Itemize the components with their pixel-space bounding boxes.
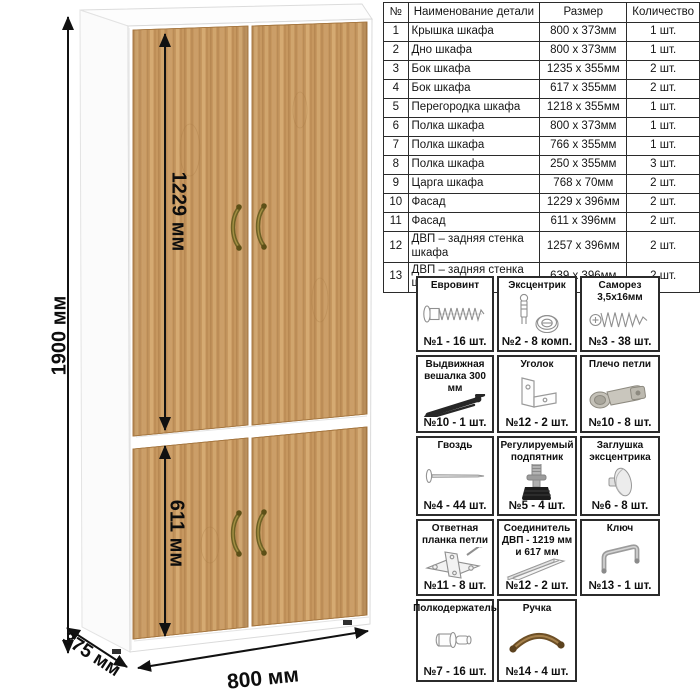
hardware-title: Соединитель ДВП - 1219 мм и 617 мм — [500, 523, 574, 558]
part-row: 2Дно шкафа800 х 373мм1 шт. — [384, 42, 700, 61]
hardware-grid: Евровинт №1 - 16 шт. Эксцентрик №2 - — [416, 276, 660, 682]
hardware-count: №3 - 38 шт. — [589, 336, 652, 348]
part-size: 768 х 70мм — [540, 175, 627, 194]
part-name: Полка шкафа — [408, 137, 540, 156]
part-size: 1229 х 396мм — [540, 194, 627, 213]
part-num: 10 — [384, 194, 409, 213]
hardware-item-veshalka: Выдвижная вешалка 300 мм №10 - 1 шт. — [416, 355, 494, 433]
dimension-label-upper-door: 1229 мм — [167, 166, 190, 258]
hardware-item-polkoderzhatel: Полкодержатель №7 - 16 шт. — [416, 599, 494, 682]
part-qty: 2 шт. — [627, 80, 700, 99]
hardware-title: Гвоздь — [438, 440, 473, 452]
header-name: Наименование детали — [408, 3, 540, 23]
hardware-count: №5 - 4 шт. — [509, 500, 565, 512]
hardware-title: Ручка — [523, 603, 552, 615]
hardware-title: Выдвижная вешалка 300 мм — [419, 359, 491, 394]
part-num: 9 — [384, 175, 409, 194]
hardware-count: №12 - 2 шт. — [506, 417, 569, 429]
cabinet-foot — [112, 649, 121, 654]
part-qty: 2 шт. — [627, 194, 700, 213]
parts-table: № Наименование детали Размер Количество … — [383, 2, 700, 293]
part-size: 800 х 373мм — [540, 118, 627, 137]
part-qty: 1 шт. — [627, 23, 700, 42]
part-qty: 1 шт. — [627, 99, 700, 118]
eccentric-cam-icon — [509, 292, 565, 336]
part-name: Фасад — [408, 194, 540, 213]
hardware-item-ruchka: Ручка №14 - 4 шт. — [497, 599, 577, 682]
hardware-count: №4 - 44 шт. — [424, 500, 487, 512]
part-row: 6Полка шкафа800 х 373мм1 шт. — [384, 118, 700, 137]
hdf-connector-icon — [504, 558, 570, 580]
part-row: 5Перегородка шкафа1218 х 355мм1 шт. — [384, 99, 700, 118]
hardware-count: №2 - 8 комп. — [502, 336, 572, 348]
part-name: Бок шкафа — [408, 61, 540, 80]
assembly-sheet: 1900 мм 1229 мм 611 мм 800 мм 375 мм № Н… — [0, 0, 700, 700]
header-num: № — [384, 3, 409, 23]
part-qty: 1 шт. — [627, 118, 700, 137]
part-row: 11Фасад611 х 396мм2 шт. — [384, 213, 700, 232]
hardware-item-podpyatnik: Регулируемый подпятник №5 - 4 шт. — [497, 436, 577, 516]
hardware-item-gvozd: Гвоздь №4 - 44 шт. — [416, 436, 494, 516]
part-size: 1257 х 396мм — [540, 232, 627, 263]
dimension-label-height: 1900 мм — [49, 288, 72, 384]
part-num: 13 — [384, 262, 409, 293]
part-name: ДВП – задняя стенка шкафа — [408, 232, 540, 263]
part-size: 766 х 355мм — [540, 137, 627, 156]
part-name: Дно шкафа — [408, 42, 540, 61]
hardware-count: №11 - 8 шт. — [424, 580, 486, 592]
hardware-count: №1 - 16 шт. — [424, 336, 487, 348]
part-size: 617 х 355мм — [540, 80, 627, 99]
part-qty: 2 шт. — [627, 61, 700, 80]
hardware-item-samorez: Саморез 3,5х16мм №3 - 38 шт. — [580, 276, 660, 352]
hardware-title: Уголок — [520, 359, 553, 371]
hardware-title: Эксцентрик — [508, 280, 565, 292]
part-num: 4 — [384, 80, 409, 99]
part-name: Полка шкафа — [408, 156, 540, 175]
part-num: 7 — [384, 137, 409, 156]
hardware-title: Плечо петли — [589, 359, 651, 371]
part-name: Крышка шкафа — [408, 23, 540, 42]
part-num: 2 — [384, 42, 409, 61]
part-size: 250 х 355мм — [540, 156, 627, 175]
hardware-title: Саморез 3,5х16мм — [583, 280, 657, 304]
part-name: Фасад — [408, 213, 540, 232]
hardware-title: Ответная планка петли — [419, 523, 491, 547]
part-name: Царга шкафа — [408, 175, 540, 194]
part-size: 800 х 373мм — [540, 42, 627, 61]
euro-screw-icon — [422, 292, 488, 336]
corner-bracket-icon — [512, 371, 562, 417]
cabinet-foot — [343, 620, 352, 625]
part-size: 800 х 373мм — [540, 23, 627, 42]
hardware-item-ekscentrik: Эксцентрик №2 - 8 комп. — [497, 276, 577, 352]
hardware-item-ugolok: Уголок №12 - 2 шт. — [497, 355, 577, 433]
part-row: 3Бок шкафа1235 х 355мм2 шт. — [384, 61, 700, 80]
part-row: 4Бок шкафа617 х 355мм2 шт. — [384, 80, 700, 99]
hardware-item-zaglushka: Заглушка эксцентрика №6 - 8 шт. — [580, 436, 660, 516]
cam-cover-icon — [601, 464, 639, 500]
part-name: Полка шкафа — [408, 118, 540, 137]
part-size: 1235 х 355мм — [540, 61, 627, 80]
hardware-title: Регулируемый подпятник — [500, 440, 574, 464]
nail-icon — [424, 452, 486, 500]
part-num: 11 — [384, 213, 409, 232]
hardware-count: №10 - 1 шт. — [424, 417, 487, 429]
part-num: 8 — [384, 156, 409, 175]
hardware-title: Полкодержатель — [413, 603, 497, 615]
hardware-item-soedinitel: Соединитель ДВП - 1219 мм и 617 мм №12 -… — [497, 519, 577, 596]
part-qty: 3 шт. — [627, 156, 700, 175]
adjustable-foot-icon — [515, 464, 559, 500]
part-num: 12 — [384, 232, 409, 263]
dimension-label-lower-door: 611 мм — [165, 494, 188, 574]
handle-icon — [506, 615, 568, 666]
part-num: 5 — [384, 99, 409, 118]
part-qty: 2 шт. — [627, 175, 700, 194]
hardware-title: Заглушка эксцентрика — [583, 440, 657, 464]
part-row: 12ДВП – задняя стенка шкафа1257 х 396мм2… — [384, 232, 700, 263]
part-row: 9Царга шкафа768 х 70мм2 шт. — [384, 175, 700, 194]
part-row: 7Полка шкафа766 х 355мм1 шт. — [384, 137, 700, 156]
hardware-item-eurovint: Евровинт №1 - 16 шт. — [416, 276, 494, 352]
key-icon — [592, 535, 648, 580]
self-tapping-screw-icon — [589, 304, 651, 336]
part-name: Перегородка шкафа — [408, 99, 540, 118]
part-qty: 2 шт. — [627, 232, 700, 263]
part-size: 1218 х 355мм — [540, 99, 627, 118]
shelf-pin-icon — [432, 615, 478, 666]
part-qty: 1 шт. — [627, 137, 700, 156]
part-qty: 1 шт. — [627, 42, 700, 61]
pullout-hanger-icon — [420, 394, 490, 417]
part-row: 1Крышка шкафа800 х 373мм1 шт. — [384, 23, 700, 42]
part-name: Бок шкафа — [408, 80, 540, 99]
part-num: 3 — [384, 61, 409, 80]
header-size: Размер — [540, 3, 627, 23]
part-row: 10Фасад1229 х 396мм2 шт. — [384, 194, 700, 213]
hinge-plate-icon — [423, 547, 487, 580]
hardware-count: №6 - 8 шт. — [592, 500, 648, 512]
hardware-title: Евровинт — [431, 280, 479, 292]
part-num: 1 — [384, 23, 409, 42]
hardware-count: №12 - 2 шт. — [506, 580, 569, 592]
header-qty: Количество — [627, 3, 700, 23]
hardware-item-klyuch: Ключ №13 - 1 шт. — [580, 519, 660, 596]
hardware-count: №7 - 16 шт. — [424, 666, 487, 678]
hardware-count: №14 - 4 шт. — [506, 666, 569, 678]
hardware-count: №10 - 8 шт. — [589, 417, 652, 429]
part-num: 6 — [384, 118, 409, 137]
parts-table-header: № Наименование детали Размер Количество — [384, 3, 700, 23]
part-row: 8Полка шкафа250 х 355мм3 шт. — [384, 156, 700, 175]
hinge-arm-icon — [587, 371, 653, 417]
part-qty: 2 шт. — [627, 213, 700, 232]
part-size: 611 х 396мм — [540, 213, 627, 232]
hardware-item-otvetnaya-planka: Ответная планка петли №11 - 8 шт. — [416, 519, 494, 596]
hardware-item-plecho-petli: Плечо петли №10 - 8 шт. — [580, 355, 660, 433]
hardware-title: Ключ — [607, 523, 633, 535]
hardware-count: №13 - 1 шт. — [589, 580, 652, 592]
